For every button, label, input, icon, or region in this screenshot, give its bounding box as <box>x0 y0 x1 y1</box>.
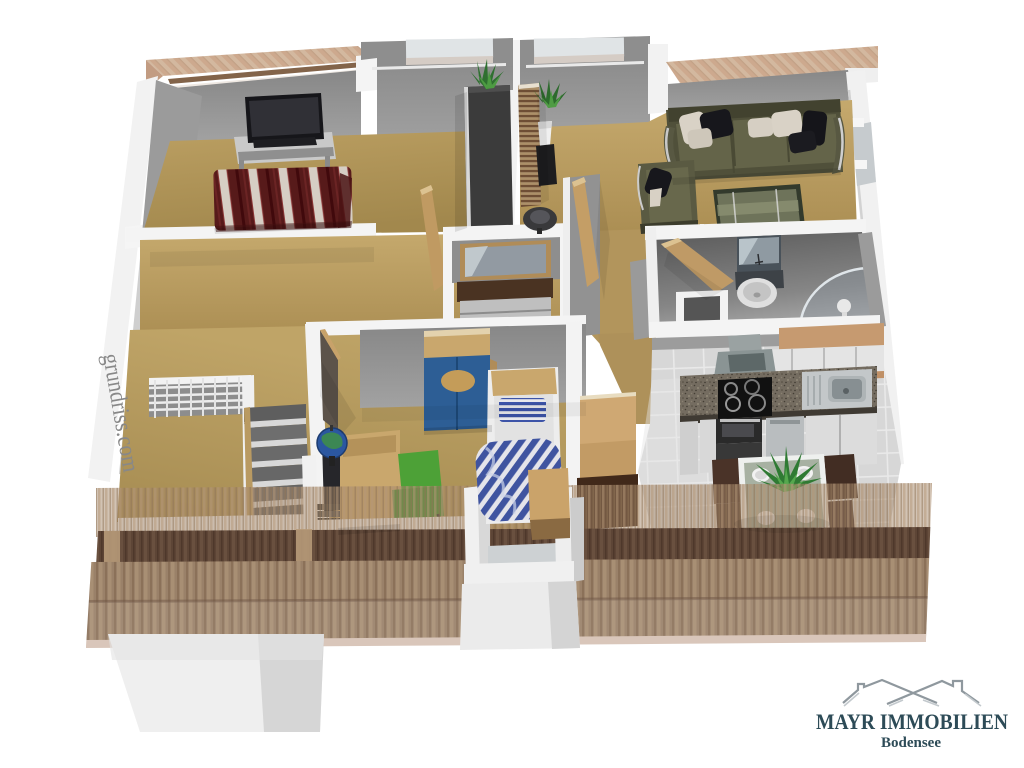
svg-text:Bodensee: Bodensee <box>881 735 941 751</box>
svg-text:MAYR IMMOBILIEN: MAYR IMMOBILIEN <box>816 709 1008 734</box>
